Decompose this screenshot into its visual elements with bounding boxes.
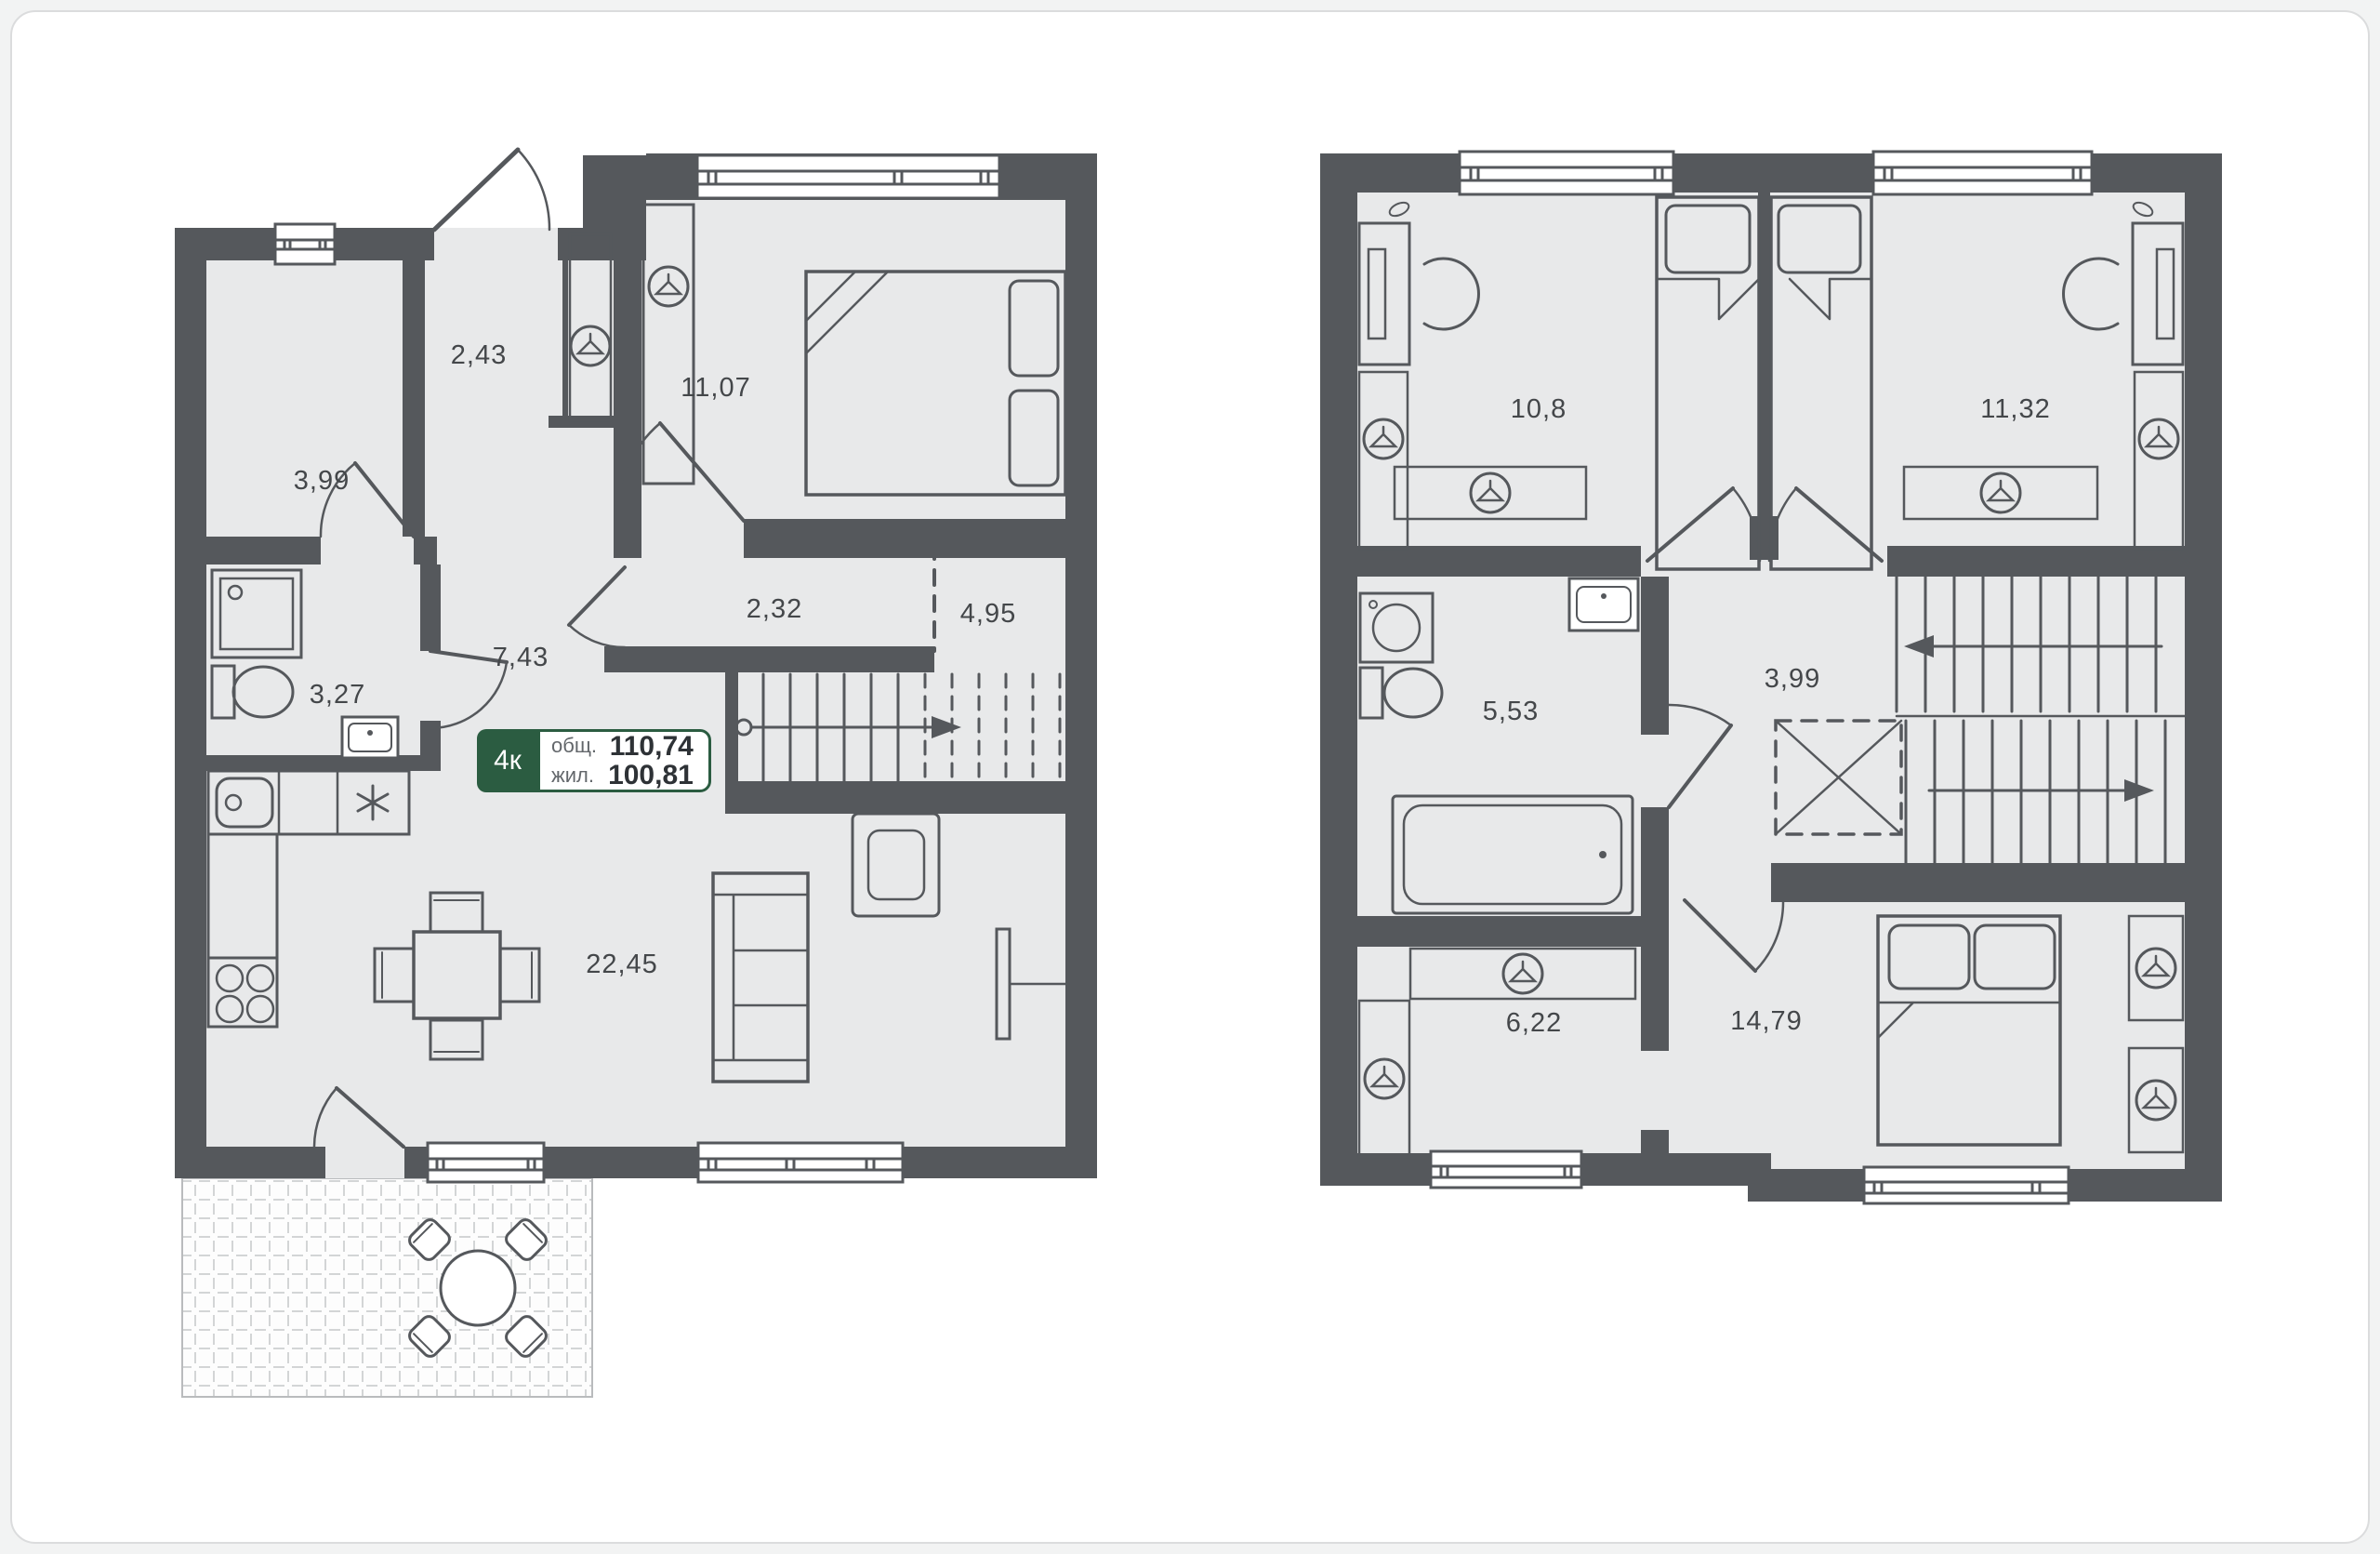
room-area-label: 7,43	[493, 643, 549, 672]
living-area-value: 100,81	[608, 761, 694, 790]
floor2-plan: 10,8 11,32 5,53 3,99 6,22 14,79	[1320, 152, 2222, 1203]
room-area-label: 2,43	[451, 340, 507, 370]
floor-plan-canvas: 2,43 3,99 11,07 7,43 2,32 4,95 3,27 22,4…	[0, 0, 2380, 1554]
room-area-label: 3,27	[310, 680, 365, 710]
window-icon	[697, 155, 999, 198]
sink-icon	[342, 717, 398, 758]
sink-icon	[1569, 578, 1638, 631]
window-icon	[428, 1143, 544, 1182]
rooms-count-tag: 4к	[477, 729, 538, 792]
room-area-label: 4,95	[960, 599, 1016, 629]
room-area-label: 22,45	[586, 950, 658, 979]
room-area-label: 2,32	[747, 594, 802, 624]
room-area-label: 6,22	[1506, 1008, 1562, 1038]
room-area-label: 11,32	[1980, 394, 2050, 424]
window-icon	[275, 224, 335, 264]
window-icon	[1431, 1151, 1581, 1188]
window-icon	[698, 1143, 903, 1182]
apartment-badge: 4к общ. 110,74 жил. 100,81	[477, 729, 711, 792]
floor-plans-svg: 2,43 3,99 11,07 7,43 2,32 4,95 3,27 22,4…	[0, 0, 2380, 1554]
terrace	[182, 1178, 592, 1397]
room-area-label: 3,99	[294, 466, 350, 496]
window-icon	[1873, 152, 2092, 194]
terrace-door-opening	[325, 1147, 404, 1178]
room-area-label: 14,79	[1730, 1006, 1803, 1036]
window-icon	[1864, 1167, 2069, 1203]
room-area-label: 11,07	[681, 373, 750, 403]
total-area-value: 110,74	[608, 732, 694, 762]
room-area-label: 3,99	[1765, 664, 1820, 694]
total-area-label: общ.	[551, 734, 597, 758]
area-values-panel: общ. 110,74 жил. 100,81	[537, 729, 711, 792]
room-area-label: 10,8	[1511, 394, 1567, 424]
living-area-label: жил.	[551, 764, 597, 788]
window-icon	[1460, 152, 1673, 194]
room-area-label: 5,53	[1483, 697, 1539, 726]
